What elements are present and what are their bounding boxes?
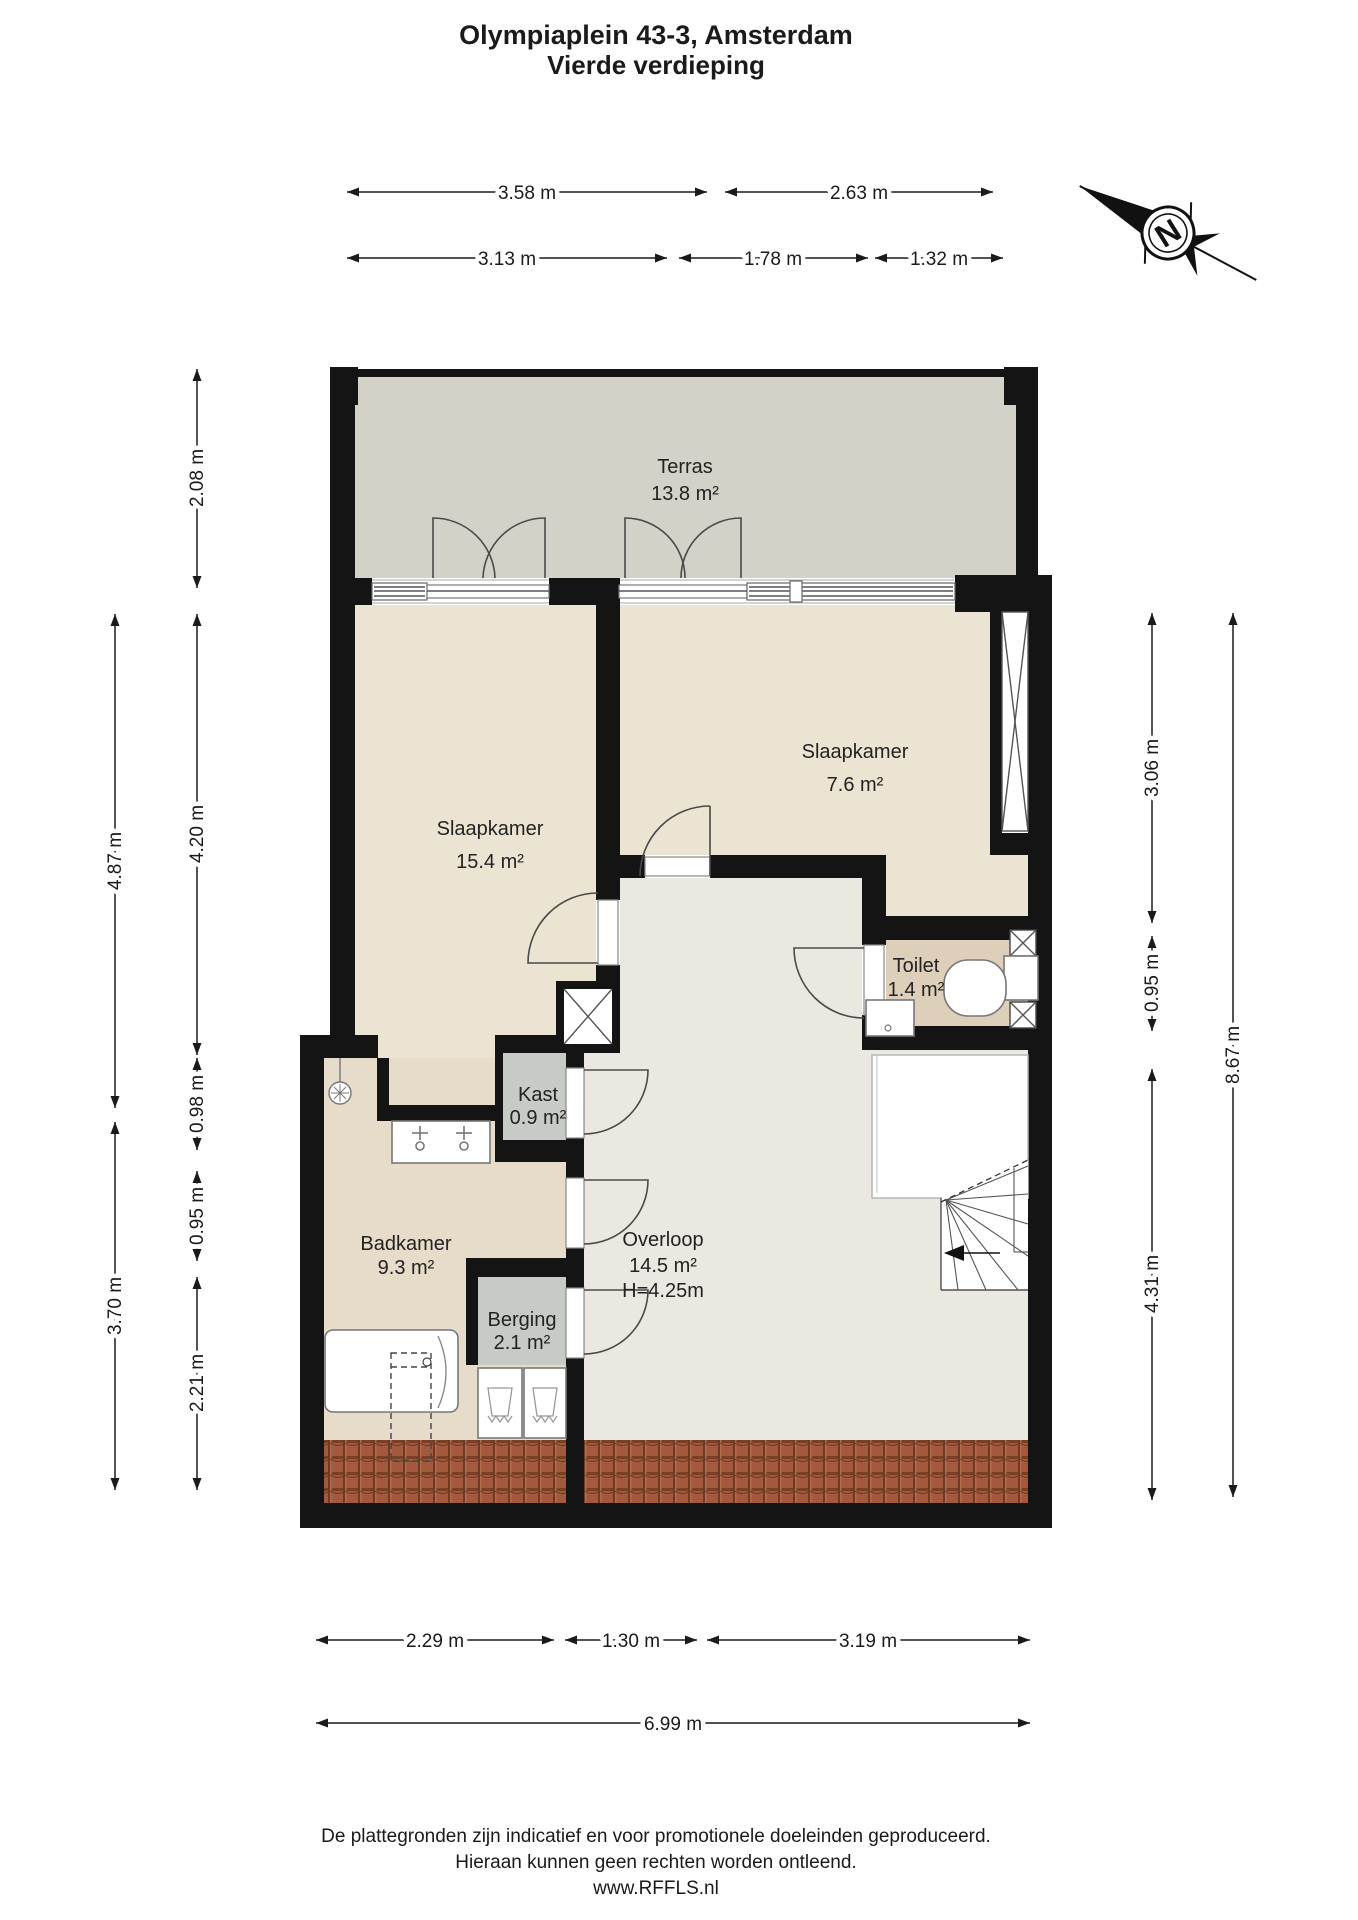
website-link: www.RFFLS.nl xyxy=(592,1878,719,1899)
svg-text:3.06 m: 3.06 m xyxy=(1142,739,1163,797)
hall-upper-floor xyxy=(620,878,862,1050)
svg-text:1.32 m: 1.32 m xyxy=(910,249,968,270)
svg-text:6.99 m: 6.99 m xyxy=(644,1714,702,1735)
svg-text:2.63 m: 2.63 m xyxy=(830,183,888,204)
washbasin-counter xyxy=(392,1121,490,1163)
slaapkamer2-floor xyxy=(620,605,990,855)
dim-left-208: 2.08 m xyxy=(187,369,208,588)
berging-area: 2.1 m² xyxy=(494,1332,551,1354)
slaapkamer1-area: 15.4 m² xyxy=(456,851,524,873)
disclaimer-line1: De plattegronden zijn indicatief en voor… xyxy=(321,1826,991,1847)
dim-right-306: 3.06 m xyxy=(1142,613,1163,923)
dim-bottom-229: 2.29 m xyxy=(316,1631,554,1652)
toilet-bowl xyxy=(944,960,1006,1016)
dim-left-095: 0.95 m xyxy=(187,1171,208,1261)
terras-label: Terras xyxy=(657,456,713,478)
overloop-label: Overloop xyxy=(622,1229,703,1251)
toilet-area: 1.4 m² xyxy=(888,979,945,1001)
disclaimer-line2: Hieraan kunnen geen rechten worden ontle… xyxy=(455,1852,856,1873)
slaapkamer2-area: 7.6 m² xyxy=(827,774,884,796)
svg-text:3.13 m: 3.13 m xyxy=(478,249,536,270)
dim-left-420: 4.20 m xyxy=(187,614,208,1055)
kast-label: Kast xyxy=(518,1084,558,1106)
slaapkamer2-limb-floor xyxy=(886,850,1028,916)
footer: De plattegronden zijn indicatief en voor… xyxy=(321,1826,991,1899)
svg-text:3.19 m: 3.19 m xyxy=(839,1631,897,1652)
page-subtitle: Vierde verdieping xyxy=(547,50,765,80)
svg-text:2.29 m: 2.29 m xyxy=(406,1631,464,1652)
overloop-height: H=4.25m xyxy=(622,1280,704,1302)
dim-bottom-319: 3.19 m xyxy=(707,1631,1030,1652)
badkamer-area: 9.3 m² xyxy=(378,1257,435,1279)
svg-text:2.08 m: 2.08 m xyxy=(187,449,208,507)
svg-text:4.31 m: 4.31 m xyxy=(1142,1255,1163,1313)
slaapkamer1-door-threshold xyxy=(598,900,618,965)
svg-text:0.95 m: 0.95 m xyxy=(187,1187,208,1245)
roof-tiles xyxy=(324,1440,1028,1503)
washer-dryer xyxy=(478,1368,566,1438)
badkamer-label: Badkamer xyxy=(360,1233,451,1255)
dim-top-313: 3.13 m xyxy=(347,249,667,270)
kast-door-threshold xyxy=(566,1068,584,1138)
berging-door-threshold xyxy=(566,1288,584,1358)
dim-left-370: 3.70 m xyxy=(105,1122,126,1490)
svg-text:8.67 m: 8.67 m xyxy=(1223,1026,1244,1084)
slaapkamer1-label: Slaapkamer xyxy=(437,818,544,840)
dim-top-263: 2.63 m xyxy=(725,183,993,204)
svg-text:0.95 m: 0.95 m xyxy=(1142,954,1163,1012)
compass-icon: N xyxy=(1062,153,1274,314)
slaapkamer2-door-threshold xyxy=(645,857,710,876)
dim-right-431: 4.31 m xyxy=(1142,1069,1163,1500)
dim-top-132: 1.32 m xyxy=(875,249,1003,270)
kast-area: 0.9 m² xyxy=(510,1107,567,1129)
svg-text:1.30 m: 1.30 m xyxy=(602,1631,660,1652)
svg-text:1.78 m: 1.78 m xyxy=(744,249,802,270)
svg-text:3.70 m: 3.70 m xyxy=(105,1277,126,1335)
window-mullion xyxy=(790,581,802,602)
dim-left-221: 2.21 m xyxy=(187,1277,208,1490)
dim-bottom-699: 6.99 m xyxy=(316,1714,1030,1735)
page-title: Olympiaplein 43-3, Amsterdam xyxy=(459,20,853,50)
slaapkamer2-label: Slaapkamer xyxy=(802,741,909,763)
toilet-cistern xyxy=(1004,956,1038,1000)
floorplan-canvas: Olympiaplein 43-3, Amsterdam Vierde verd… xyxy=(0,0,1358,1920)
svg-text:3.58 m: 3.58 m xyxy=(498,183,556,204)
dim-top-178: 1.78 m xyxy=(679,249,868,270)
dim-left-098: 0.98 m xyxy=(187,1058,208,1150)
dim-right-867: 8.67 m xyxy=(1223,613,1244,1497)
berging-label: Berging xyxy=(488,1309,557,1331)
overloop-area: 14.5 m² xyxy=(629,1255,697,1277)
svg-text:4.87 m: 4.87 m xyxy=(105,832,126,890)
dim-bottom-130: 1.30 m xyxy=(565,1631,697,1652)
badkamer-door-threshold xyxy=(566,1178,584,1248)
bathtub xyxy=(325,1330,458,1412)
svg-text:0.98 m: 0.98 m xyxy=(187,1075,208,1133)
terras-area: 13.8 m² xyxy=(651,483,719,505)
toilet-label: Toilet xyxy=(893,955,940,977)
dim-top-358: 3.58 m xyxy=(347,183,707,204)
dim-left-487: 4.87 m xyxy=(105,614,126,1108)
svg-text:4.20 m: 4.20 m xyxy=(187,805,208,863)
dim-right-095: 0.95 m xyxy=(1142,936,1163,1031)
svg-text:2.21 m: 2.21 m xyxy=(187,1354,208,1412)
